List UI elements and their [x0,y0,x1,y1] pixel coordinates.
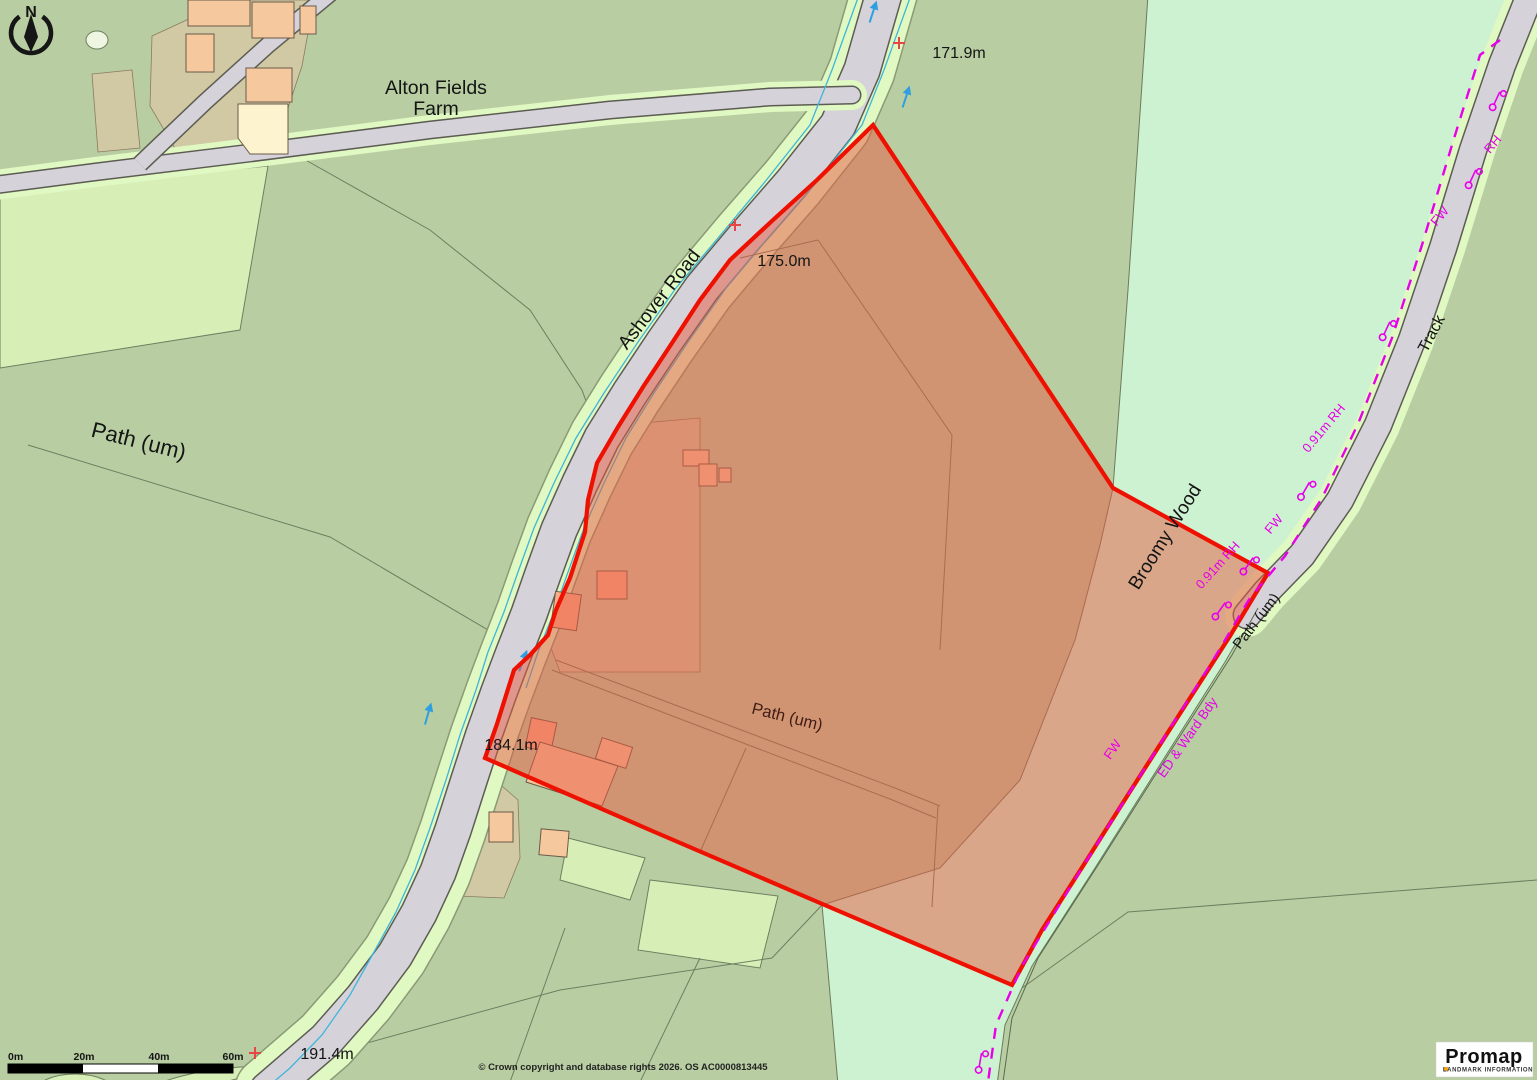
building [186,34,214,72]
compass-north-label: N [25,4,37,21]
scale-tick-40: 40m [148,1051,169,1063]
building [246,68,292,102]
scale-bar-segment [158,1064,233,1073]
copyright-text: © Crown copyright and database rights 20… [478,1062,768,1073]
building [489,812,513,842]
elevation-171: 171.9m [932,45,985,62]
elevation-175: 175.0m [757,253,810,270]
building [188,0,250,26]
scale-bar-segment [8,1064,83,1073]
logo-subtext: LANDMARK INFORMATION [1443,1068,1533,1074]
scale-tick-0: 0m [8,1051,23,1063]
building-cream [238,104,288,154]
pond-farm [86,31,108,49]
alton-farm-yard-strip [92,70,140,152]
elevation-184: 184.1m [484,737,537,754]
map-canvas[interactable]: RH FW 0.91m RH FW 0.91m RH FW ED & Ward … [0,0,1537,1080]
logo-text: Promap [1445,1046,1522,1068]
promap-map-view: RH FW 0.91m RH FW 0.91m RH FW ED & Ward … [0,0,1537,1080]
building [300,6,316,34]
scale-tick-20: 20m [73,1051,94,1063]
farm-name-line2: Farm [413,98,459,120]
scale-tick-60: 60m [222,1051,243,1063]
building [252,2,294,38]
farm-name-line1: Alton Fields [385,77,487,99]
promap-logo: Promap LANDMARK INFORMATION [1436,1042,1533,1077]
elevation-191: 191.4m [300,1046,353,1063]
building [539,829,569,857]
